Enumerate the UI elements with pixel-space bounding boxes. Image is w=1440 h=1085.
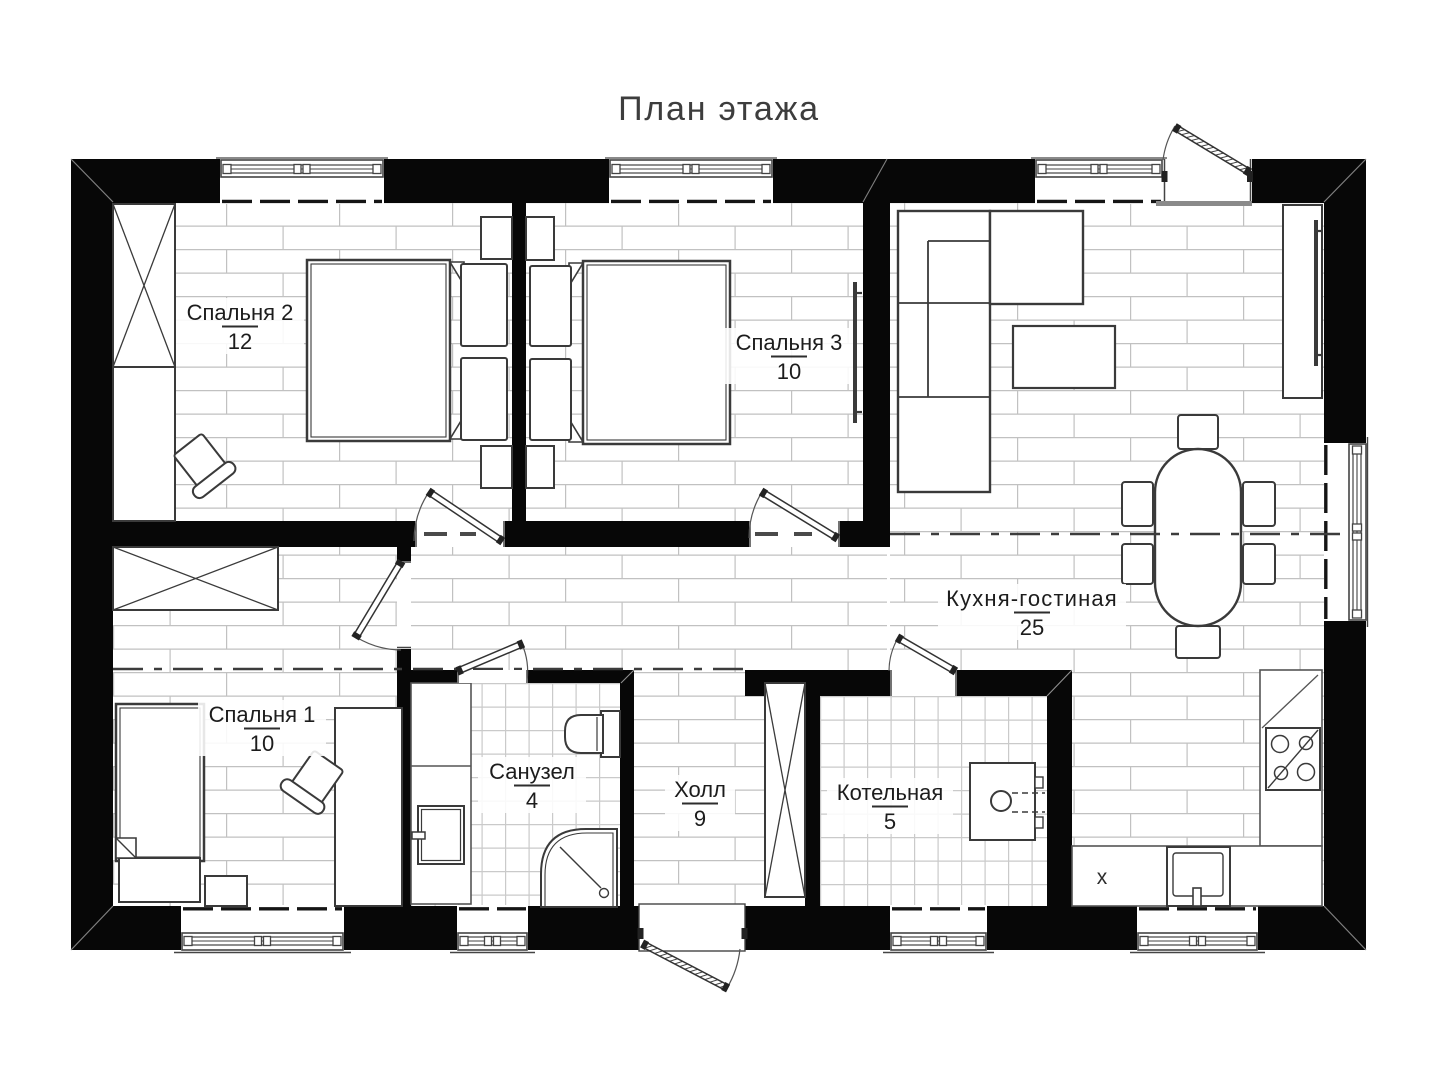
svg-text:Спальня 3: Спальня 3 xyxy=(736,330,843,355)
svg-text:Спальня 2: Спальня 2 xyxy=(187,300,294,325)
svg-text:Санузел: Санузел xyxy=(489,759,575,784)
svg-text:Котельная: Котельная xyxy=(837,780,944,805)
svg-text:9: 9 xyxy=(694,806,706,831)
svg-text:Кухня-гостиная: Кухня-гостиная xyxy=(946,586,1118,611)
svg-text:5: 5 xyxy=(884,809,896,834)
svg-text:4: 4 xyxy=(526,788,538,813)
svg-text:25: 25 xyxy=(1020,615,1044,640)
svg-text:Спальня 1: Спальня 1 xyxy=(209,702,316,727)
svg-text:План этажа: План этажа xyxy=(618,90,820,128)
svg-text:x: x xyxy=(1097,866,1108,889)
svg-text:12: 12 xyxy=(228,329,252,354)
svg-text:10: 10 xyxy=(777,359,801,384)
svg-text:10: 10 xyxy=(250,731,274,756)
svg-text:Холл: Холл xyxy=(674,777,726,802)
